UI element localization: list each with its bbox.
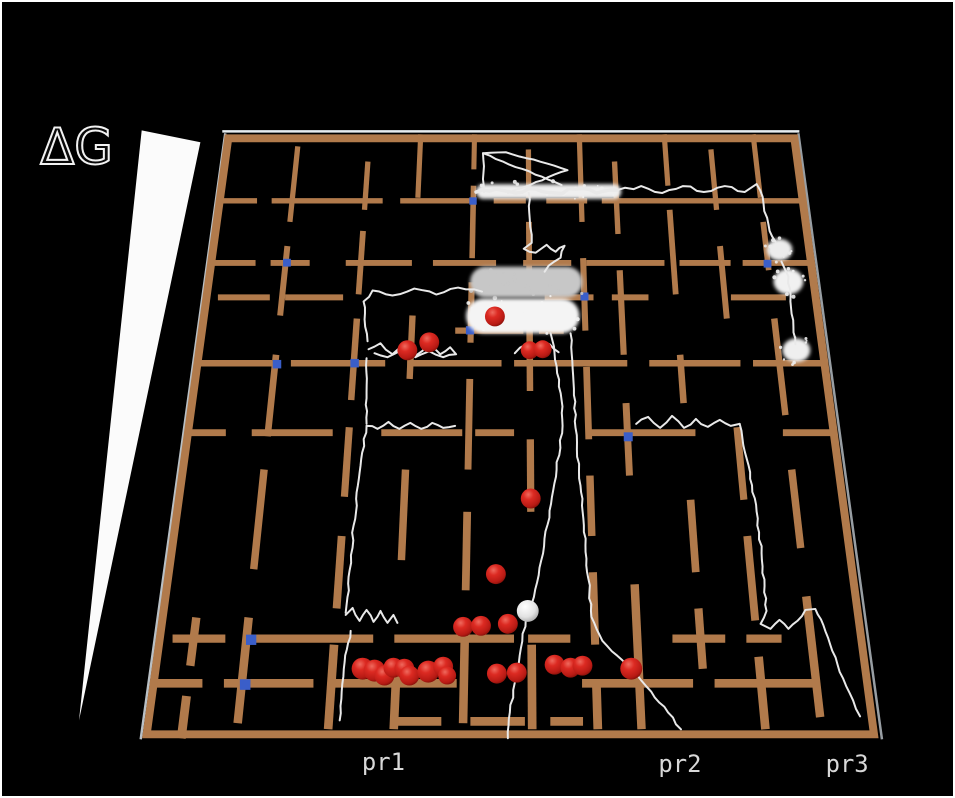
cluster-speckle	[787, 267, 790, 270]
cluster-speckle	[792, 270, 795, 273]
grid-col-segment	[472, 186, 473, 258]
blue-marker	[469, 197, 476, 204]
red-sphere	[397, 340, 417, 360]
cluster-speckle	[790, 250, 792, 252]
cluster-speckle	[612, 194, 614, 196]
grid-col-segment	[468, 379, 470, 470]
red-sphere	[471, 616, 491, 636]
red-sphere	[485, 306, 505, 326]
grid-col-segment	[290, 146, 298, 221]
red-sphere	[399, 666, 419, 686]
trajectory-right-wiggle-row	[636, 416, 739, 428]
grid-col-segment	[328, 645, 334, 730]
cluster-speckle	[522, 307, 525, 310]
cluster-speckle	[783, 358, 785, 360]
state-cluster-blob	[767, 239, 793, 261]
state-cluster-band	[470, 267, 582, 298]
cluster-speckle	[540, 301, 544, 305]
white-sphere	[517, 600, 539, 622]
grid-col-segment	[401, 470, 405, 561]
cluster-speckle	[554, 321, 558, 325]
grid-col-segment	[587, 367, 589, 439]
blue-marker	[246, 635, 256, 645]
cluster-speckle	[482, 303, 484, 305]
cluster-speckle	[778, 236, 782, 240]
cluster-speckle	[805, 341, 807, 343]
red-sphere	[486, 564, 506, 584]
trajectory-left-exit	[340, 631, 351, 721]
red-sphere	[487, 664, 507, 684]
grid-col-segment	[280, 246, 287, 315]
red-sphere	[507, 663, 527, 683]
cluster-speckle	[539, 290, 543, 294]
grid-col-segment	[238, 617, 249, 723]
cluster-speckle	[566, 309, 569, 312]
cluster-speckle	[764, 244, 767, 247]
trajectory-left-drop	[366, 358, 367, 424]
cluster-speckle	[804, 337, 807, 340]
cluster-speckle	[580, 292, 583, 295]
grid-col-segment	[698, 608, 702, 668]
grid-col-segment	[344, 427, 349, 496]
cluster-speckle	[804, 279, 806, 281]
trajectory-band1-tail	[617, 184, 775, 242]
figure-canvas: ΔG pr1 pr2 pr3	[0, 0, 955, 798]
cluster-speckle	[785, 292, 789, 296]
cluster-speckle	[487, 284, 489, 286]
cluster-speckle	[557, 289, 560, 292]
cluster-speckle	[532, 308, 536, 312]
grid-col-segment	[691, 500, 696, 572]
grid-col-segment	[747, 536, 755, 621]
cluster-speckle	[489, 268, 493, 272]
cluster-speckle	[521, 322, 526, 327]
blue-marker	[240, 679, 251, 690]
cluster-speckle	[792, 295, 796, 299]
cluster-speckle	[514, 280, 517, 283]
cluster-speckle	[481, 325, 485, 329]
grid-col-segment	[670, 210, 676, 295]
cluster-speckle	[779, 346, 782, 349]
cluster-speckle	[582, 196, 584, 198]
cluster-speckle	[792, 361, 796, 365]
red-sphere	[534, 340, 552, 358]
axis-label-pr3: pr3	[826, 750, 869, 778]
red-sphere	[620, 658, 642, 680]
cluster-speckle	[573, 327, 577, 331]
axis-label-pr1: pr1	[362, 748, 405, 776]
grid-col-segment	[365, 162, 368, 210]
blue-marker	[283, 259, 291, 267]
grid-col-segment	[337, 536, 342, 608]
cluster-speckle	[523, 312, 526, 315]
grid-col-segment	[190, 617, 196, 665]
cluster-speckle	[466, 301, 470, 305]
cluster-speckle	[772, 275, 776, 279]
grid-col-segment	[359, 231, 363, 294]
axis-label-pr2: pr2	[658, 750, 701, 778]
grid-col-segment	[254, 470, 264, 570]
cluster-speckle	[530, 304, 533, 307]
grid-col-segment	[620, 270, 624, 355]
cluster-speckle	[556, 303, 559, 306]
red-sphere	[521, 489, 541, 509]
cluster-speckle	[495, 273, 498, 276]
grid-layer	[152, 134, 834, 738]
cluster-speckle	[487, 271, 489, 273]
cluster-speckle	[806, 340, 808, 342]
grid-col-segment	[774, 319, 785, 416]
cluster-speckle	[548, 284, 551, 287]
delta-g-wedge-icon	[79, 130, 200, 720]
blue-marker	[764, 260, 772, 268]
cluster-speckle	[768, 244, 772, 248]
grid-col-segment	[792, 470, 801, 549]
grid-col-segment	[579, 134, 582, 222]
grid-col-segment	[593, 572, 595, 644]
red-sphere	[573, 656, 593, 676]
cluster-speckle	[513, 310, 517, 314]
cluster-speckle	[513, 273, 516, 276]
red-sphere	[419, 332, 439, 352]
delta-g-label: ΔG	[40, 118, 113, 176]
cluster-speckle	[576, 317, 580, 321]
cluster-speckle	[506, 281, 510, 285]
red-sphere	[438, 667, 456, 685]
cluster-speckle	[491, 181, 494, 184]
cluster-speckle	[501, 300, 503, 302]
cluster-speckle	[513, 307, 515, 309]
cluster-speckle	[542, 313, 545, 316]
cluster-speckle	[502, 273, 504, 275]
blue-marker	[273, 360, 281, 368]
cluster-speckle	[502, 270, 505, 273]
grid-col-segment	[635, 584, 642, 729]
cluster-speckle	[571, 273, 574, 276]
trajectory-left-squiggle2	[346, 608, 398, 623]
state-cluster-layer	[466, 179, 810, 366]
trajectory-left-wiggle-row	[367, 422, 456, 429]
blue-marker	[624, 432, 633, 441]
cluster-speckle	[502, 323, 505, 326]
cluster-speckle	[561, 274, 563, 276]
cluster-speckle	[471, 307, 475, 311]
cluster-speckle	[516, 182, 520, 186]
cluster-speckle	[775, 261, 778, 264]
cluster-speckle	[501, 282, 505, 286]
red-sphere	[498, 614, 518, 634]
grid-col-segment	[720, 246, 727, 318]
grid-col-segment	[532, 645, 533, 730]
cluster-speckle	[574, 198, 576, 200]
cluster-speckle	[524, 284, 527, 287]
cluster-speckle	[549, 295, 551, 297]
grid-col-segment	[596, 681, 598, 729]
cluster-speckle	[776, 270, 780, 274]
grid-col-segment	[466, 512, 468, 591]
cluster-speckle	[802, 275, 805, 278]
cluster-speckle	[539, 309, 541, 311]
grid-col-segment	[590, 476, 592, 536]
grid-col-segment	[680, 355, 683, 403]
free-energy-landscape-figure: ΔG pr1 pr2 pr3	[2, 2, 953, 796]
cluster-speckle	[783, 256, 785, 258]
red-sphere	[453, 617, 473, 637]
grid-col-segment	[759, 657, 766, 729]
blue-marker	[350, 359, 358, 367]
grid-col-segment	[418, 134, 421, 197]
cluster-speckle	[597, 185, 599, 187]
cluster-speckle	[532, 293, 535, 296]
cluster-speckle	[545, 332, 548, 335]
